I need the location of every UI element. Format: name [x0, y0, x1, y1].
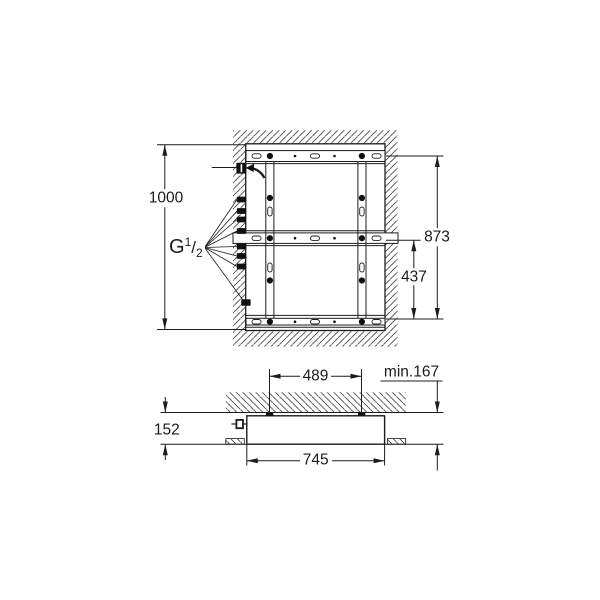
finished-ceiling-strip	[387, 439, 405, 445]
drawing-linework	[0, 0, 600, 600]
section-view	[161, 392, 444, 444]
housing-box	[247, 416, 385, 444]
thread-denominator: 2	[196, 246, 203, 260]
label-housing-width: 745	[300, 451, 332, 469]
label-stud-spacing: 489	[300, 367, 332, 385]
label-frame-height: 873	[421, 228, 453, 246]
label-lower-section: 437	[398, 268, 430, 286]
label-min-depth: min.167	[381, 363, 442, 381]
slab-hatch	[226, 392, 406, 412]
label-total-height: 1000	[146, 189, 186, 207]
front-view	[205, 130, 399, 346]
technical-drawing: 1000 G1/2 873 437 489 min.167 152 745	[0, 0, 600, 600]
label-thread-size: G1/2	[167, 236, 205, 259]
side-connection-nipple	[232, 420, 247, 428]
mounting-stud	[358, 412, 365, 416]
middle-rail	[233, 233, 398, 244]
thread-g: G	[169, 236, 185, 258]
finished-ceiling-strip	[226, 439, 245, 445]
mounting-stud	[266, 412, 273, 416]
label-housing-height: 152	[151, 421, 183, 439]
